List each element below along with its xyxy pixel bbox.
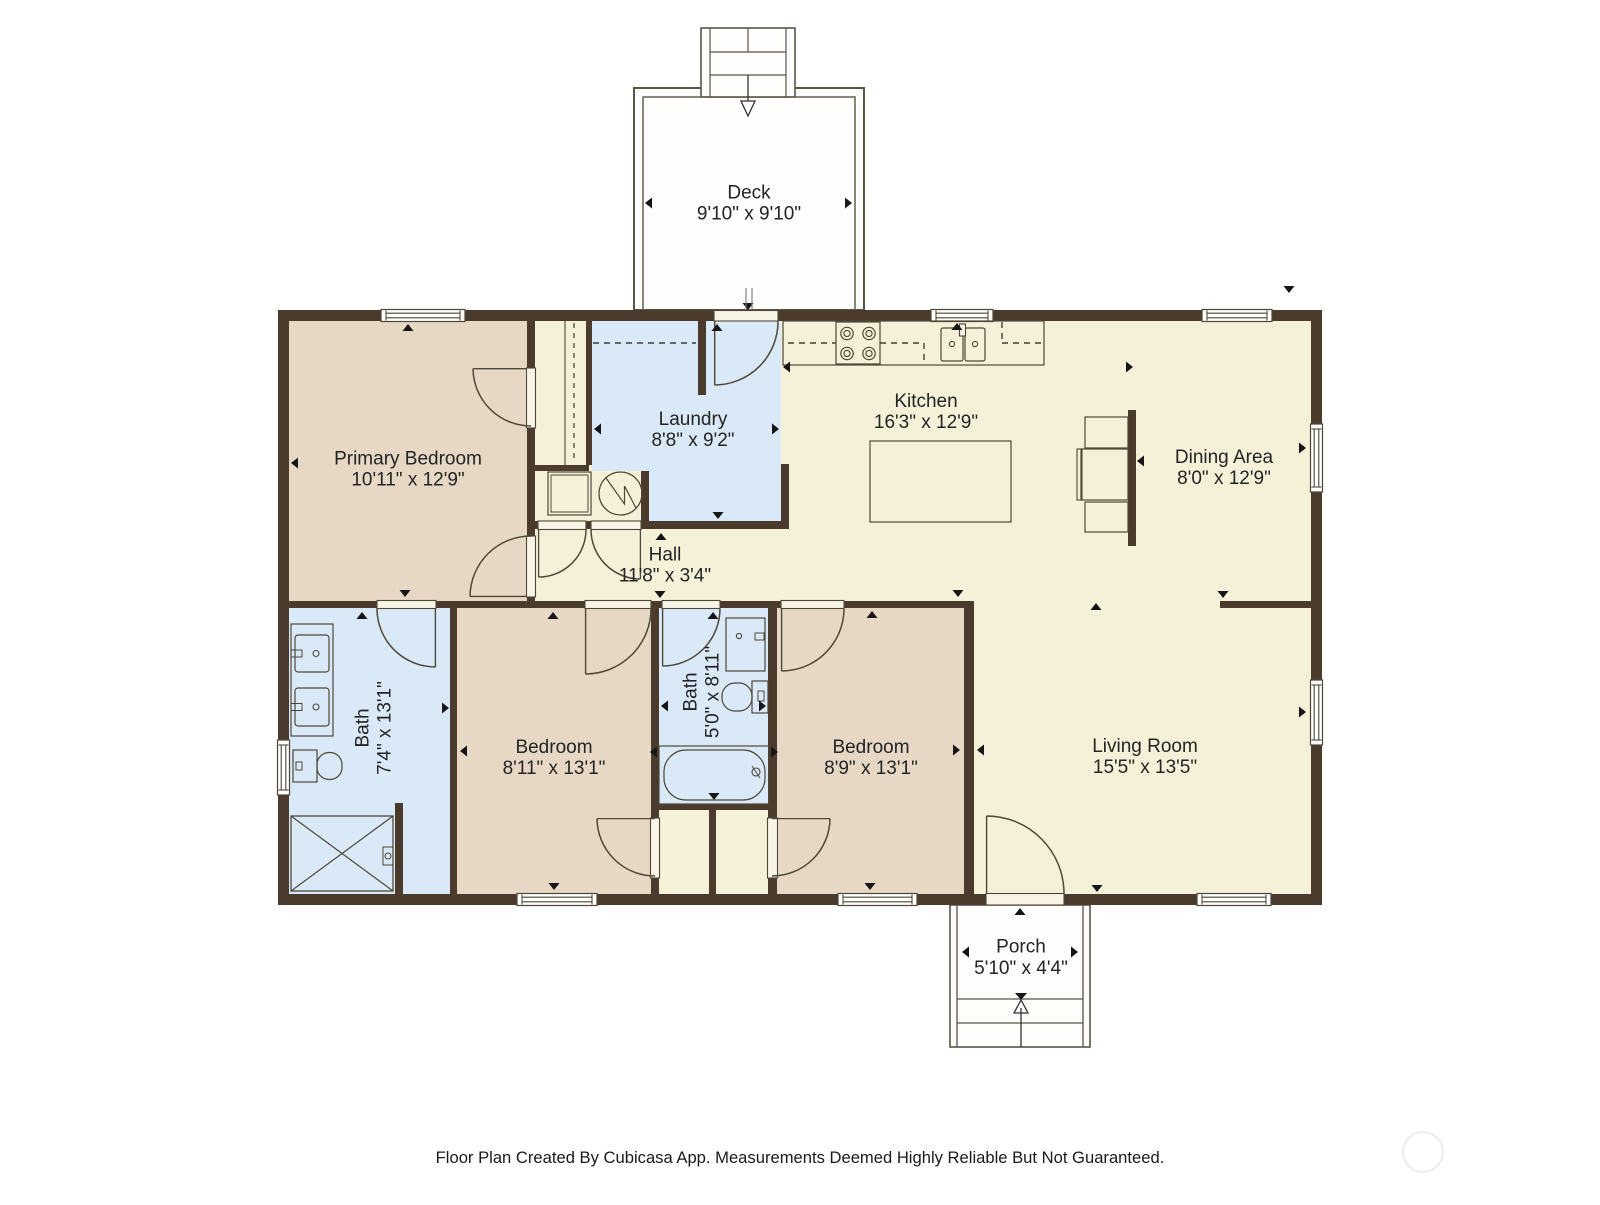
svg-text:Bath: Bath bbox=[353, 708, 374, 747]
svg-text:5'0" x 8'11": 5'0" x 8'11" bbox=[703, 646, 724, 738]
svg-text:Porch: Porch bbox=[996, 937, 1046, 958]
svg-text:Laundry: Laundry bbox=[659, 409, 728, 430]
svg-text:Hall: Hall bbox=[649, 544, 682, 565]
svg-text:7'4" x 13'1": 7'4" x 13'1" bbox=[375, 681, 396, 775]
svg-text:5'10" x 4'4": 5'10" x 4'4" bbox=[974, 958, 1068, 979]
svg-text:Deck: Deck bbox=[727, 183, 771, 204]
svg-text:8'9" x 13'1": 8'9" x 13'1" bbox=[824, 758, 918, 779]
svg-text:Primary Bedroom: Primary Bedroom bbox=[334, 448, 482, 469]
svg-text:Dining Area: Dining Area bbox=[1175, 447, 1274, 468]
svg-text:8'11" x 13'1": 8'11" x 13'1" bbox=[503, 758, 606, 779]
svg-text:8'0" x 12'9": 8'0" x 12'9" bbox=[1177, 468, 1271, 489]
svg-text:Bedroom: Bedroom bbox=[832, 737, 909, 758]
svg-text:10'11" x 12'9": 10'11" x 12'9" bbox=[351, 469, 464, 490]
svg-text:8'8" x 9'2": 8'8" x 9'2" bbox=[651, 430, 734, 451]
svg-text:Kitchen: Kitchen bbox=[894, 391, 957, 412]
svg-text:Living Room: Living Room bbox=[1092, 736, 1198, 757]
svg-text:9'10" x 9'10": 9'10" x 9'10" bbox=[697, 204, 801, 225]
svg-text:Bedroom: Bedroom bbox=[515, 737, 592, 758]
svg-text:15'5" x 13'5": 15'5" x 13'5" bbox=[1093, 757, 1197, 778]
svg-text:16'3" x 12'9": 16'3" x 12'9" bbox=[874, 412, 978, 433]
svg-text:Floor Plan Created By Cubicasa: Floor Plan Created By Cubicasa App. Meas… bbox=[436, 1148, 1165, 1167]
svg-text:11'8" x 3'4": 11'8" x 3'4" bbox=[619, 565, 711, 586]
svg-text:Bath: Bath bbox=[681, 672, 702, 711]
